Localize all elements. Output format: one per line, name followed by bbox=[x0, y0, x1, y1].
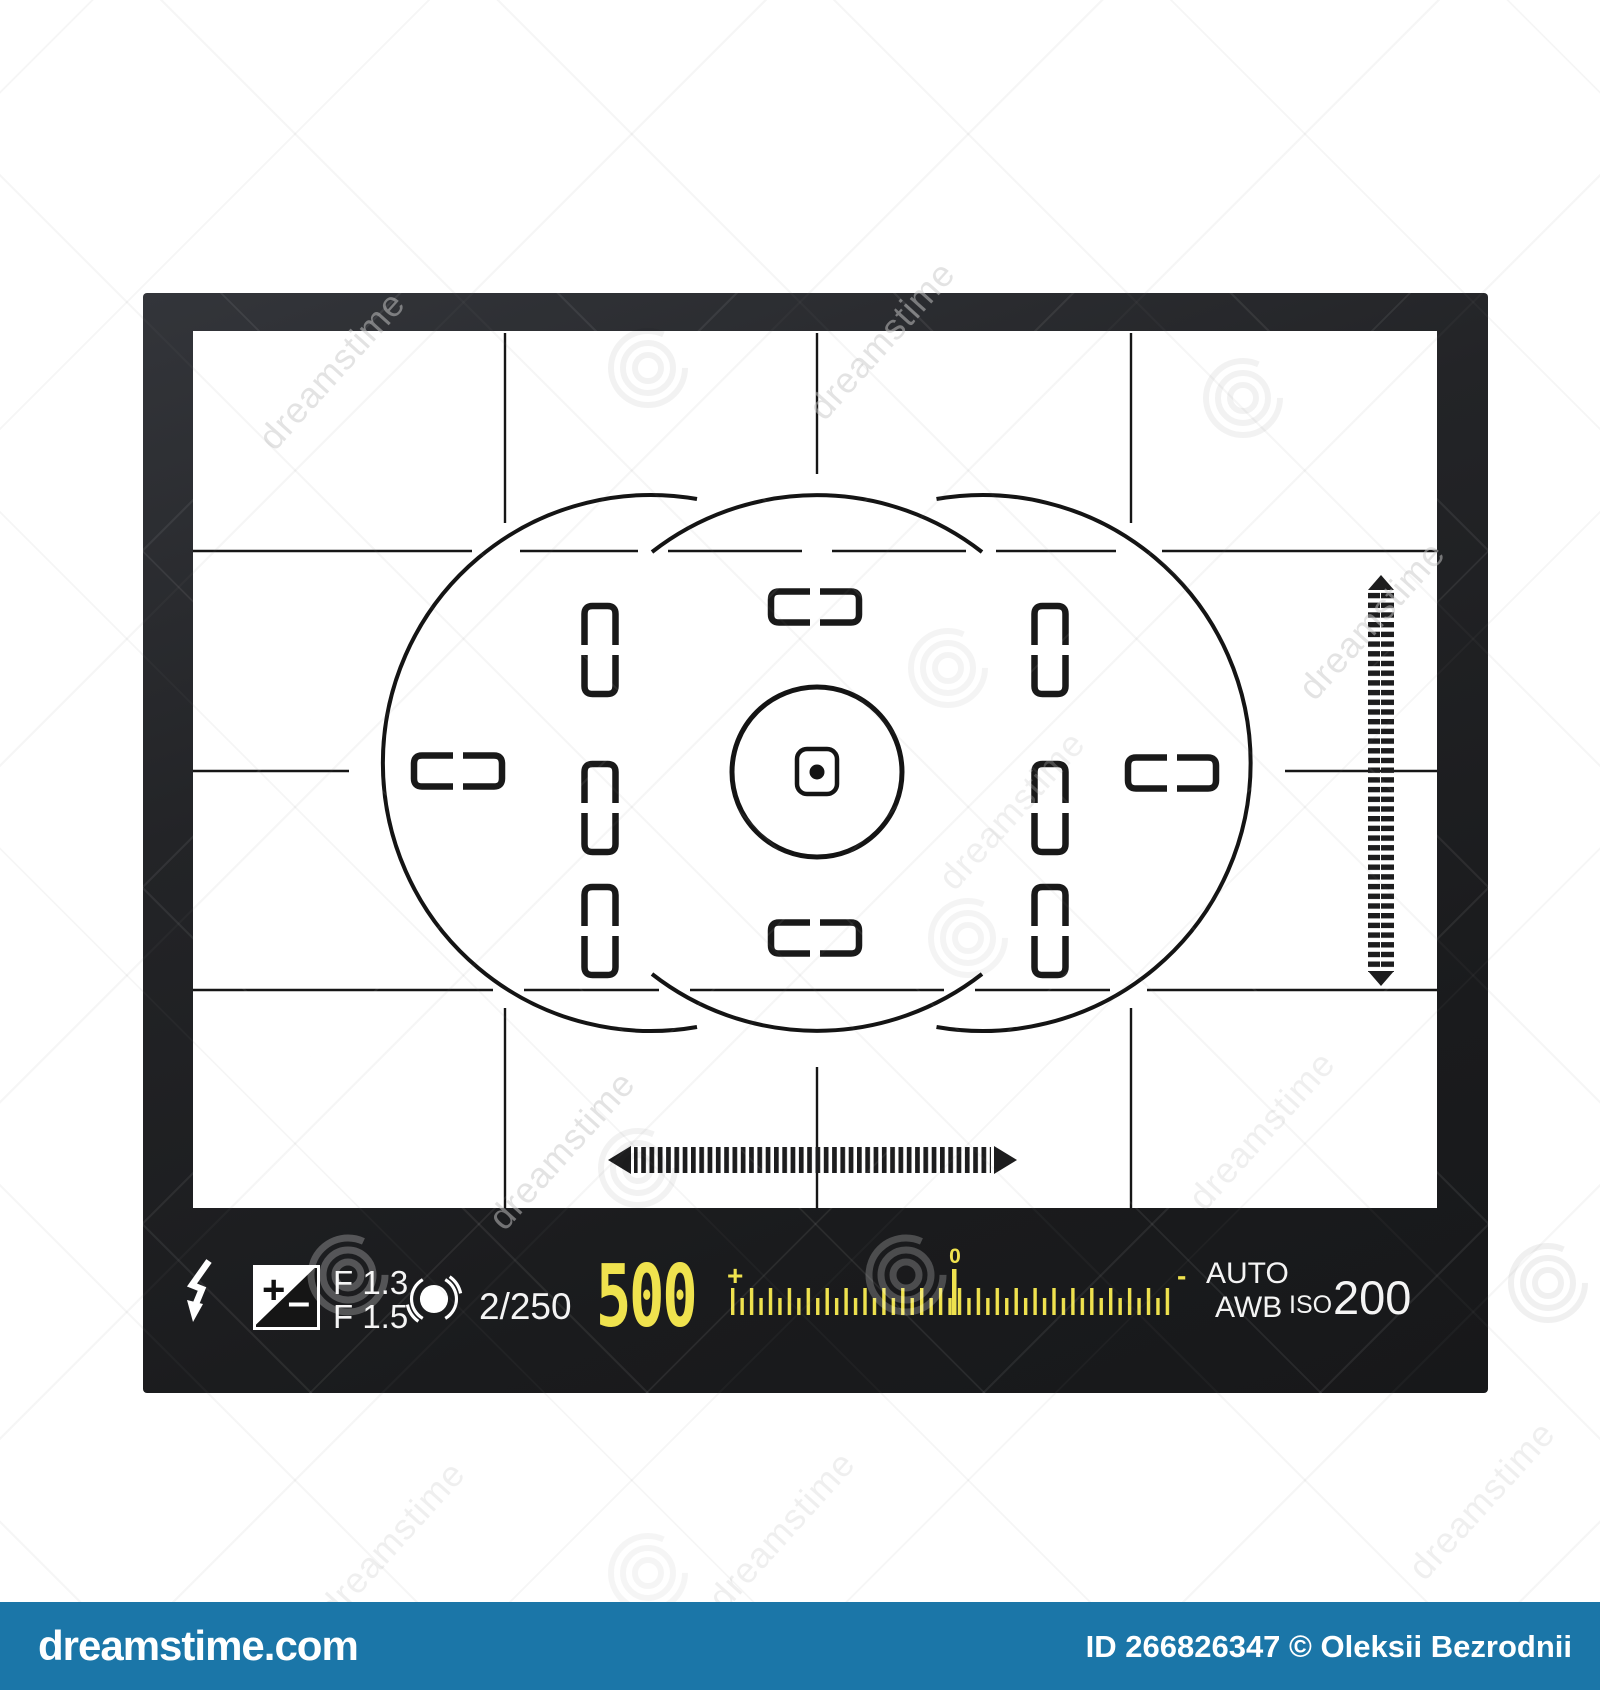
aperture-low: F 1.3 bbox=[333, 1266, 408, 1299]
meter-minus-label: - bbox=[1177, 1262, 1186, 1290]
credit-bar: dreamstime.com ID 266826347 © Oleksii Be… bbox=[0, 1602, 1600, 1690]
viewfinder-screen bbox=[193, 331, 1437, 1208]
aperture-high: F 1.5 bbox=[333, 1300, 408, 1333]
horizontal-scale bbox=[608, 1146, 1017, 1174]
flash-icon bbox=[183, 1258, 217, 1328]
iso-label: ISO bbox=[1289, 1293, 1332, 1318]
exposure-compensation-icon: + – bbox=[253, 1265, 320, 1330]
focus-grid-graphics bbox=[193, 331, 1437, 1208]
white-balance-type: AWB bbox=[1215, 1293, 1282, 1323]
watermark-text: dreamstime bbox=[700, 1443, 864, 1618]
exposure-comp-minus: – bbox=[288, 1280, 310, 1325]
af-brackets bbox=[414, 592, 1216, 976]
statusbar: + – F 1.3 F 1.5 2/250 500 + bbox=[143, 1208, 1488, 1393]
frame-counter: 2/250 bbox=[479, 1288, 572, 1325]
camera-viewfinder-frame: + – F 1.3 F 1.5 2/250 500 + bbox=[143, 293, 1488, 1393]
exposure-comp-plus: + bbox=[262, 1268, 285, 1313]
dreamstime-logo: dreamstime.com bbox=[38, 1622, 358, 1670]
stock-photo-page: dreamstime dreamstime dreamstime dreamst… bbox=[0, 0, 1600, 1690]
spot-metering-icon bbox=[405, 1270, 463, 1328]
watermark-spiral-icon bbox=[1500, 1235, 1596, 1331]
iso-value: 200 bbox=[1333, 1274, 1411, 1321]
image-credit: ID 266826347 © Oleksii Bezrodnii bbox=[1086, 1629, 1572, 1665]
meter-zero-label: 0 bbox=[945, 1246, 965, 1267]
metering-oval bbox=[383, 495, 1251, 1031]
center-af-dot bbox=[810, 765, 825, 780]
vertical-scale bbox=[1368, 575, 1394, 986]
white-balance-mode: AUTO bbox=[1206, 1259, 1289, 1289]
watermark-text: dreamstime bbox=[1400, 1413, 1564, 1588]
meter-center-tick bbox=[952, 1269, 957, 1315]
shutter-speed-value: 500 bbox=[596, 1264, 696, 1330]
